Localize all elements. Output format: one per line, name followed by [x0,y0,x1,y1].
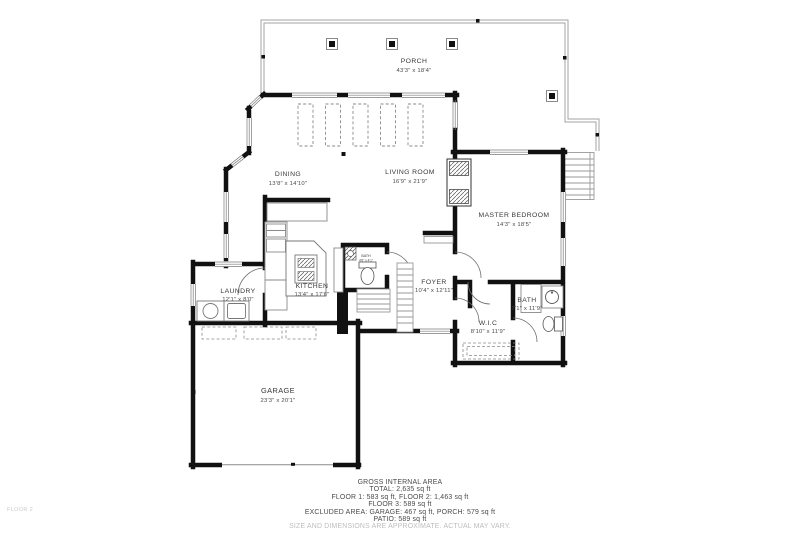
window [348,92,390,98]
powder-toilet [359,262,376,285]
washer [203,304,218,319]
window [231,155,244,167]
window [190,284,196,306]
dining-dims: 13'8" x 14'10" [269,181,307,187]
bath-dims: 7'1" x 11'9" [512,306,543,312]
window [215,261,242,267]
window [246,118,252,146]
wic-label: W.I.C [479,320,498,327]
area-summary-line: FLOOR 3: 589 sq ft [250,501,550,508]
walls [191,93,565,467]
area-summary-line: FLOOR 1: 583 sq ft, FLOOR 2: 1,463 sq ft [250,494,550,501]
window [250,96,262,108]
window [223,234,229,258]
foyer-dims: 10'4" x 12'11" [415,288,453,294]
laundry-label: LAUNDRY [220,288,255,295]
porch-ticks [262,19,600,137]
kitchen-dims: 13'4" x 17'6" [295,292,330,298]
laundry-dims: 12'1" x 8'0" [222,297,253,303]
area-summary-disclaimer: SIZE AND DIMENSIONS ARE APPROXIMATE. ACT… [250,523,550,530]
porch-outline [261,20,599,151]
area-summary-line: TOTAL: 2,635 sq ft [250,486,550,493]
area-summary: GROSS INTERNAL AREA TOTAL: 2,635 sq ft F… [250,479,550,531]
bath-toilet [543,317,563,332]
master-bedroom-label: MASTER BEDROOM [479,212,550,219]
porch-label: PORCH [401,58,428,65]
floor-plan-drawing: PORCH 43'3" x 18'4" DINING 13'8" x 14'10… [0,0,800,533]
porch-post [447,39,458,50]
porch-dims: 43'3" x 18'4" [397,68,432,74]
garage-label: GARAGE [261,386,295,395]
window [223,192,229,222]
bath-label: BATH [517,297,536,304]
window [402,92,445,98]
stair-wall [337,292,348,334]
living-room-dims: 16'9" x 21'9" [393,179,428,185]
powder-bath-label: BATH [361,254,371,258]
window [420,328,450,334]
foyer-label: FOYER [421,279,446,286]
porch-post [547,91,558,102]
floor-plan-page: PORCH 43'3" x 18'4" DINING 13'8" x 14'10… [0,0,800,533]
master-bedroom-dims: 14'3" x 18'5" [497,222,532,228]
porch-posts [327,39,558,102]
powder-bath-fixtures [345,247,376,285]
floor-label: FLOOR 2 [7,507,33,513]
kitchen-peninsula-counter [267,203,327,221]
window [560,238,566,266]
kitchen-tall-cabinet [334,248,343,292]
wic-closet-dashed [463,343,519,359]
window [490,149,528,155]
area-summary-line: EXCLUDED AREA: GARAGE: 467 sq ft, PORCH:… [250,509,550,516]
living-room-label: LIVING ROOM [385,169,435,176]
area-summary-line: PATIO: 589 sq ft [250,516,550,523]
kitchen-label: KITCHEN [296,283,329,290]
kitchen-left-counter [265,222,287,310]
area-summary-title: GROSS INTERNAL AREA [250,479,550,486]
powder-bath-dims: 4'6" x 4'1" [359,259,373,263]
garage-storage-dashed [202,327,316,339]
wic-door-arc [455,298,479,322]
fireplace [447,159,471,206]
ceiling-opening-dashed [298,104,423,146]
porch-post [327,39,338,50]
bath-door-arc [513,318,537,342]
window [560,192,566,222]
master-door-arc [455,252,481,278]
window-seat [424,237,453,244]
wic-dims: 8'10" x 11'9" [471,329,505,335]
garage-dims: 23'3" x 20'1" [261,398,296,404]
garage-wall-tick [192,390,196,394]
porch-door [453,100,457,130]
column-tick [342,152,346,156]
dryer [228,304,246,319]
window [292,92,337,98]
exterior-stairs [563,153,594,200]
dining-label: DINING [275,171,301,178]
laundry-appliances [197,301,249,321]
porch-post [387,39,398,50]
garage-door [222,462,333,469]
